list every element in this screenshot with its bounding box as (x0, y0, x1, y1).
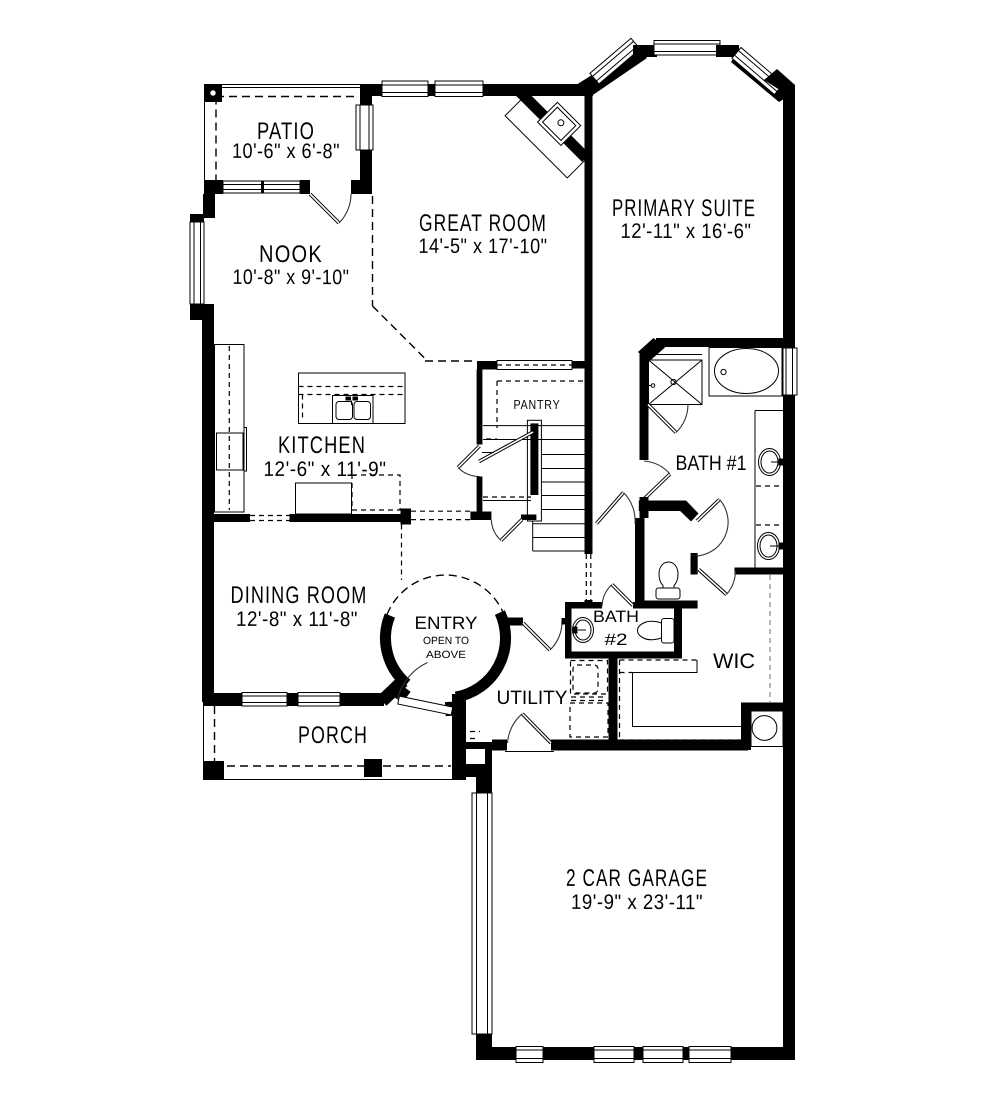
svg-text:10'-8" x 9'-10": 10'-8" x 9'-10" (232, 266, 349, 289)
svg-text:BATH #1: BATH #1 (675, 452, 746, 475)
svg-text:GREAT ROOM: GREAT ROOM (419, 210, 547, 237)
svg-text:NOOK: NOOK (259, 241, 323, 268)
svg-text:12'-11" x 16'-6": 12'-11" x 16'-6" (620, 220, 751, 243)
svg-text:12'-6" x 11'-9": 12'-6" x 11'-9" (263, 458, 386, 481)
svg-text:12'-8" x 11'-8": 12'-8" x 11'-8" (236, 608, 358, 631)
svg-text:2 CAR GARAGE: 2 CAR GARAGE (566, 865, 708, 892)
svg-text:ABOVE: ABOVE (426, 649, 466, 661)
svg-text:14'-5" x 17'-10": 14'-5" x 17'-10" (418, 235, 547, 258)
svg-text:PANTRY: PANTRY (513, 397, 560, 412)
svg-text:OPEN TO: OPEN TO (423, 635, 469, 647)
svg-text:PORCH: PORCH (298, 722, 368, 749)
svg-text:19'-9" x 23'-11": 19'-9" x 23'-11" (571, 891, 703, 914)
svg-text:WIC: WIC (713, 650, 755, 673)
svg-text:PRIMARY SUITE: PRIMARY SUITE (612, 195, 756, 222)
svg-text:ENTRY: ENTRY (414, 613, 477, 633)
svg-text:#2: #2 (604, 631, 627, 649)
svg-text:BATH: BATH (593, 608, 639, 626)
svg-text:DINING ROOM: DINING ROOM (230, 582, 367, 609)
svg-text:KITCHEN: KITCHEN (278, 432, 366, 459)
svg-text:UTILITY: UTILITY (496, 687, 567, 709)
svg-text:10'-6" x 6'-8": 10'-6" x 6'-8" (232, 140, 340, 163)
